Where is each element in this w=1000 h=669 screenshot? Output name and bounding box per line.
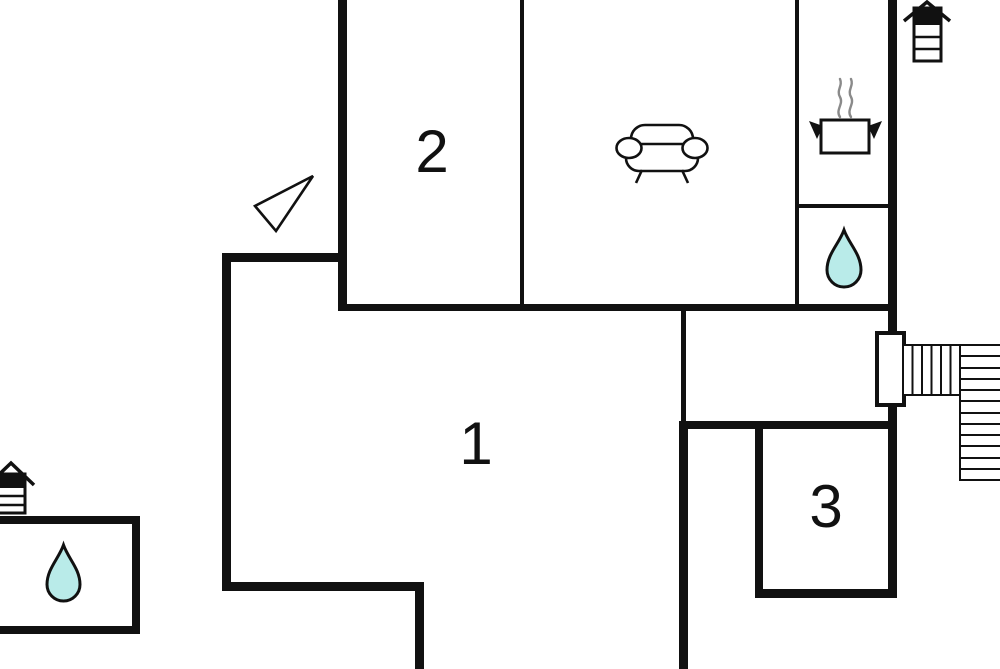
sofa-icon [617, 125, 708, 183]
stairs-icon [903, 345, 1000, 480]
steam-line [838, 79, 841, 117]
room-label-3: 3 [809, 477, 842, 537]
water-drop-icon [47, 545, 80, 601]
entrance-arrow-icon [255, 176, 313, 231]
door-icon [877, 333, 904, 405]
stove-pot-icon [809, 79, 882, 153]
floor-plan: 1 2 3 [0, 0, 1000, 669]
chimney-icon [904, 2, 950, 61]
room-label-2: 2 [415, 122, 448, 182]
chimney-icon [0, 463, 34, 513]
water-drop-icon [827, 230, 861, 287]
room-label-1: 1 [459, 414, 492, 474]
steam-line [849, 79, 852, 117]
symbols-layer [0, 0, 1000, 669]
